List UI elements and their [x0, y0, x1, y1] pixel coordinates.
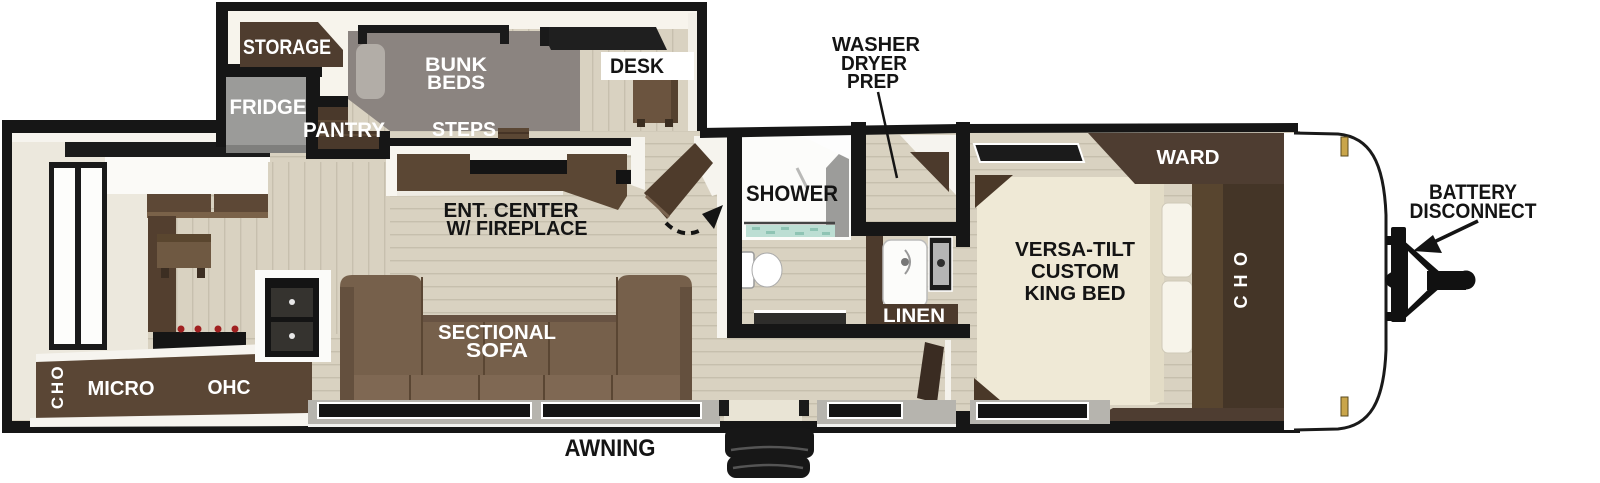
svg-text:PANTRY: PANTRY — [303, 119, 385, 142]
svg-text:SOFA: SOFA — [466, 340, 528, 362]
svg-text:CUSTOM: CUSTOM — [1031, 261, 1119, 283]
svg-text:H: H — [1231, 275, 1251, 288]
svg-text:AWNING: AWNING — [565, 435, 656, 462]
svg-text:OHC: OHC — [208, 377, 251, 399]
svg-text:DISCONNECT: DISCONNECT — [1410, 200, 1537, 223]
svg-text:H: H — [48, 382, 67, 394]
svg-text:LINEN: LINEN — [883, 306, 945, 327]
svg-text:SHOWER: SHOWER — [746, 181, 838, 206]
svg-text:KING BED: KING BED — [1025, 283, 1126, 305]
svg-text:W/ FIREPLACE: W/ FIREPLACE — [447, 218, 588, 240]
svg-text:BEDS: BEDS — [427, 73, 485, 94]
svg-text:O: O — [48, 366, 67, 379]
svg-text:C: C — [48, 397, 67, 409]
svg-text:VERSA-TILT: VERSA-TILT — [1015, 239, 1135, 261]
svg-text:STORAGE: STORAGE — [243, 36, 331, 59]
svg-text:FRIDGE: FRIDGE — [230, 96, 307, 119]
svg-text:PREP: PREP — [847, 71, 899, 93]
svg-text:C: C — [1231, 296, 1251, 309]
svg-text:STEPS: STEPS — [432, 119, 496, 141]
svg-text:DESK: DESK — [610, 55, 664, 78]
svg-text:WARD: WARD — [1157, 147, 1220, 169]
svg-text:MICRO: MICRO — [88, 378, 155, 400]
svg-text:O: O — [1231, 252, 1251, 266]
